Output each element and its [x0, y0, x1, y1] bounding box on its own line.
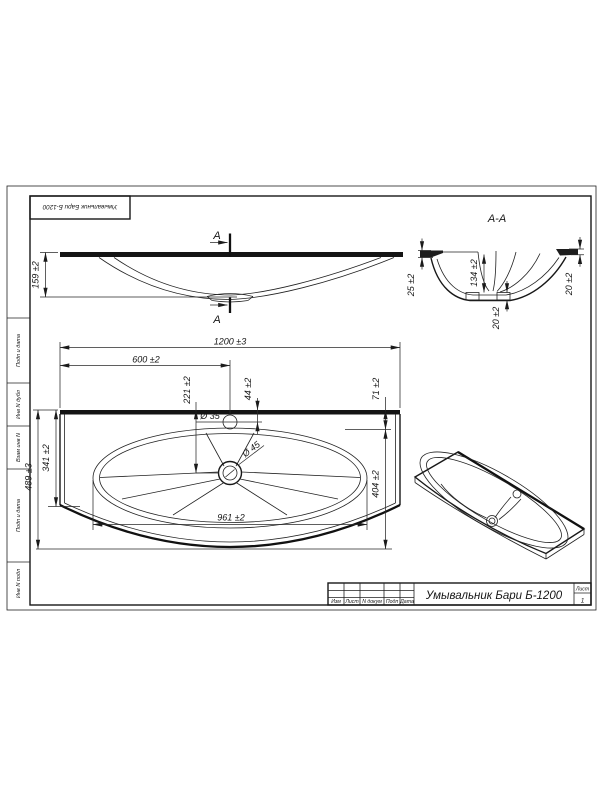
col-data: Дата	[399, 599, 414, 605]
section-outer-wall	[431, 257, 566, 301]
dim-bowl-width-label: 961 ±2	[217, 513, 244, 523]
iso-back-edge	[458, 452, 584, 529]
plan-front-arc	[60, 505, 400, 547]
left-rim-cut	[420, 251, 443, 258]
bowl-outer-curve	[99, 258, 394, 300]
bowl-rim-inner	[100, 434, 361, 523]
dim-bowl-offset-label: 71 ±2	[371, 378, 381, 400]
iso-view	[408, 435, 584, 566]
total-depth-ext	[33, 410, 392, 549]
sheet-frame	[7, 186, 596, 610]
sheet-label: Лист	[575, 587, 590, 593]
plan-view: 1200 ±3 600 ±2 221 ±2 44 ±2 71 ±2 404 ±2…	[24, 337, 401, 550]
side-label-inv-podl: Инв N подл	[16, 569, 22, 598]
side-label-vzam-inv: Взам инв N	[16, 433, 22, 462]
front-view: 159 ±2 А А	[31, 230, 404, 326]
iso-bowl-outer	[408, 435, 580, 566]
dim-rim-left-label: 25 ±2	[406, 274, 416, 297]
height-extension-lines	[40, 253, 237, 298]
dim-bowl-depth-label: 134 ±2	[469, 259, 479, 286]
dim-total-width-label: 1200 ±3	[214, 337, 246, 347]
section-inner-wall	[437, 258, 559, 296]
title-block: Изм Лист N докум Подп Дата Умывальник Ба…	[328, 583, 591, 605]
dim-drain-offset-label: 221 ±2	[182, 376, 192, 404]
iso-bowl-inner	[417, 443, 571, 556]
bowl-flow-lines	[100, 472, 360, 515]
drain-cut-left	[466, 293, 479, 301]
iso-faucet-hole	[513, 490, 521, 498]
col-docnum: N докум	[362, 599, 382, 605]
dim-height-label: 159 ±2	[31, 261, 41, 288]
section-view-label: А-А	[487, 213, 506, 225]
drawing-title: Умывальник Бари Б-1200	[425, 590, 563, 602]
side-label-podp-data-top: Подп и дата	[16, 334, 22, 367]
col-podp: Подп	[386, 599, 399, 605]
drain-cut-right	[497, 293, 510, 301]
dim-faucet-offset-label: 44 ±2	[243, 378, 253, 400]
dim-right-inner-label: 404 ±2	[371, 470, 381, 497]
dim-rim-right-label: 20 ±2	[564, 273, 574, 296]
col-list: Лист	[344, 599, 359, 605]
countertop-edge	[60, 252, 403, 257]
frame-side-boxes: Подп и дата Инв N дубл Взам инв N Подп и…	[7, 318, 30, 598]
sheet-outer-border	[7, 186, 596, 610]
corner-stamp: Умывальник Бари Б-1200	[30, 196, 130, 219]
bowl-inner-curve	[114, 258, 381, 296]
side-label-inv-dubl: Инв N дубл	[16, 390, 22, 419]
col-izm: Изм	[331, 599, 341, 605]
dim-faucet-hole-label: Ø 35	[199, 411, 221, 421]
technical-drawing-sheet: Подп и дата Инв N дубл Взам инв N Подп и…	[0, 0, 600, 800]
dim-total-depth-label: 489 ±3	[24, 463, 34, 490]
dim-left-inner-label: 341 ±2	[41, 444, 51, 471]
dim-center-label: 600 ±2	[132, 355, 159, 365]
section-view: А-А 25 ±2 134 ±2 20 ±2 20 ±2	[406, 213, 584, 330]
corner-stamp-text: Умывальник Бари Б-1200	[42, 203, 118, 210]
dim-drain-hole-label: Ø 45	[240, 439, 263, 460]
drain-tick	[226, 470, 235, 478]
sheet-number: 1	[581, 598, 585, 605]
dim-drain-depth-label: 20 ±2	[491, 307, 501, 330]
side-label-podp-data-bottom: Подп и дата	[16, 499, 22, 532]
drawing-page: Подп и дата Инв N дубл Взам инв N Подп и…	[0, 0, 600, 800]
iso-top-face	[415, 452, 584, 554]
iso-bowl-curves	[441, 484, 521, 520]
section-mark-bottom: А	[212, 314, 220, 326]
section-mark-top: А	[212, 230, 220, 242]
